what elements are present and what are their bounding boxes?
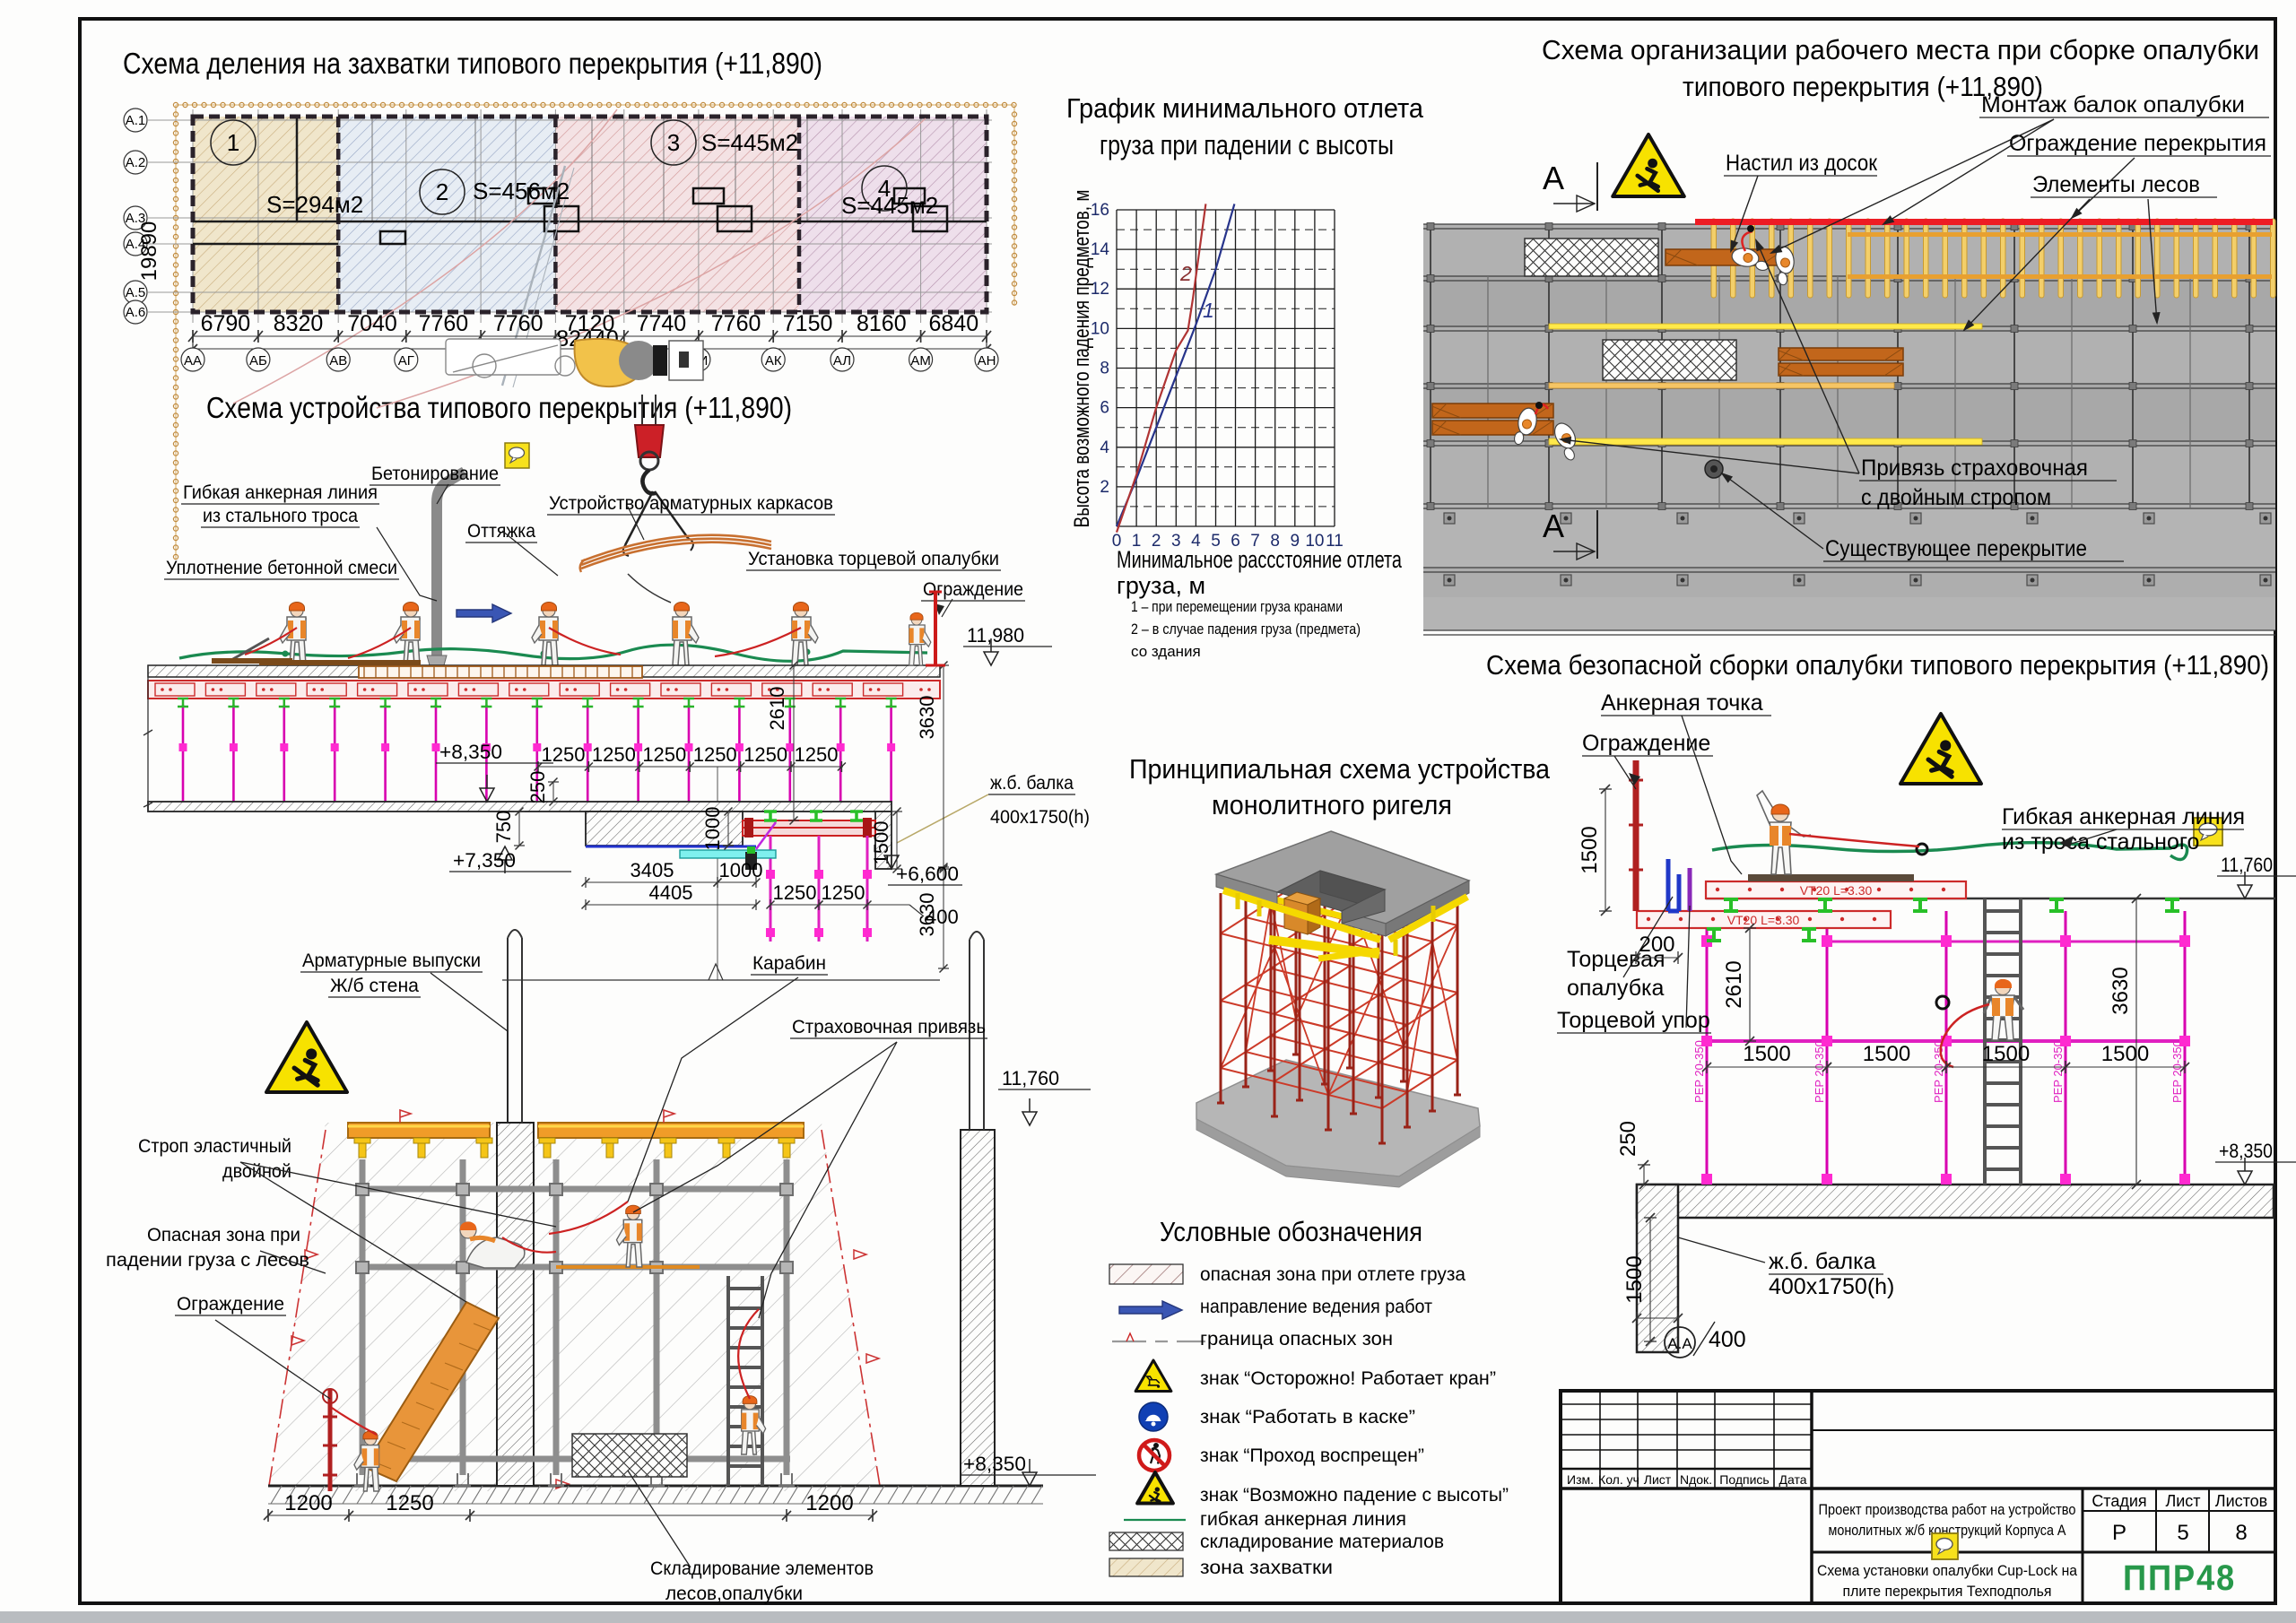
svg-text:1250: 1250	[795, 743, 839, 766]
svg-text:АБ: АБ	[249, 353, 267, 369]
svg-text:1250: 1250	[386, 1491, 433, 1515]
svg-text:VT20 L=3.30: VT20 L=3.30	[1727, 913, 1800, 927]
svg-text:1200: 1200	[805, 1491, 853, 1515]
svg-text:Опасная зона при: Опасная зона при	[147, 1225, 300, 1245]
svg-text:2610: 2610	[766, 687, 788, 731]
svg-text:+6,600: +6,600	[896, 863, 959, 885]
svg-text:Стадия: Стадия	[2092, 1492, 2146, 1510]
svg-text:АЛ: АЛ	[833, 353, 851, 369]
svg-text:7040: 7040	[347, 311, 397, 336]
svg-text:6790: 6790	[201, 311, 251, 336]
svg-text:8: 8	[1100, 360, 1109, 378]
svg-text:Кол. уч: Кол. уч	[1598, 1472, 1639, 1487]
svg-text:19890: 19890	[137, 221, 161, 282]
svg-text:монолитного ригеля: монолитного ригеля	[1212, 789, 1452, 820]
svg-text:PEP 20-350: PEP 20-350	[2170, 1040, 2184, 1103]
svg-text:АА: АА	[184, 353, 202, 369]
svg-text:250: 250	[526, 771, 549, 804]
svg-text:1500: 1500	[1578, 826, 1602, 873]
svg-text:200: 200	[1639, 933, 1674, 957]
svg-text:+8,350: +8,350	[439, 741, 502, 763]
svg-text:1500: 1500	[1863, 1042, 1910, 1066]
svg-text:А: А	[1543, 508, 1564, 544]
svg-text:АГ: АГ	[398, 353, 414, 369]
svg-text:из троса стального: из троса стального	[2002, 829, 2199, 855]
svg-text:График минимального отлета: График минимального отлета	[1066, 92, 1424, 124]
svg-text:Установка торцевой опалубки: Установка торцевой опалубки	[748, 549, 999, 569]
svg-text:1500: 1500	[2101, 1042, 2149, 1066]
svg-text:VT20 L=3.30: VT20 L=3.30	[1800, 883, 1873, 898]
svg-text:750: 750	[492, 811, 515, 844]
svg-text:Складирование элементов: Складирование элементов	[650, 1558, 874, 1579]
svg-text:3: 3	[667, 129, 680, 156]
svg-text:250: 250	[1616, 1121, 1640, 1157]
svg-text:Привязь страховочная: Привязь страховочная	[1861, 456, 2088, 481]
svg-text:5: 5	[2177, 1521, 2188, 1545]
svg-text:гибкая анкерная линия: гибкая анкерная линия	[1200, 1509, 1406, 1530]
svg-text:Оттяжка: Оттяжка	[467, 521, 535, 542]
svg-text:из стального троса: из стального троса	[203, 506, 358, 526]
svg-text:11,980: 11,980	[967, 624, 1024, 647]
svg-text:1250: 1250	[822, 881, 865, 904]
svg-text:1000: 1000	[701, 807, 724, 851]
svg-text:1250: 1250	[642, 743, 686, 766]
svg-text:2: 2	[1179, 262, 1192, 285]
svg-text:1: 1	[227, 129, 239, 156]
svg-text:Подпись: Подпись	[1719, 1472, 1769, 1487]
svg-text:1500: 1500	[1982, 1042, 2030, 1066]
svg-text:знак “Осторожно! Работает кран: знак “Осторожно! Работает кран”	[1200, 1368, 1496, 1389]
svg-text:1500: 1500	[870, 821, 892, 865]
svg-text:граница опасных зон: граница опасных зон	[1200, 1329, 1393, 1350]
svg-text:плите перекрытия Техподполья: плите перекрытия Техподполья	[1843, 1583, 2052, 1600]
svg-text:Р: Р	[2112, 1521, 2126, 1545]
svg-text:складирование материалов: складирование материалов	[1200, 1532, 1444, 1552]
svg-text:2: 2	[436, 178, 448, 205]
svg-text:груза при падении с высоты: груза при падении с высоты	[1100, 129, 1394, 161]
svg-text:ж.б. балка: ж.б. балка	[990, 773, 1074, 794]
svg-text:8: 8	[2235, 1521, 2247, 1545]
svg-text:1: 1	[1203, 299, 1214, 322]
svg-text:двойной: двойной	[222, 1161, 291, 1182]
svg-text:1250: 1250	[773, 881, 817, 904]
svg-text:знак “Работать в каске”: знак “Работать в каске”	[1200, 1407, 1415, 1428]
svg-text:2 – в случае падения груза (пр: 2 – в случае падения груза (предмета)	[1131, 621, 1361, 638]
svg-text:А.5: А.5	[126, 285, 146, 300]
svg-text:АК: АК	[765, 353, 782, 369]
svg-text:1 – при перемещении груза кран: 1 – при перемещении груза кранами	[1131, 598, 1343, 615]
svg-text:PEP 20-350: PEP 20-350	[1692, 1040, 1706, 1103]
svg-text:Арматурные выпуски: Арматурные выпуски	[302, 950, 481, 971]
svg-text:+8,350: +8,350	[963, 1453, 1026, 1475]
svg-text:опасная зона при отлете груза: опасная зона при отлете груза	[1200, 1264, 1465, 1285]
svg-text:с двойным стропом: с двойным стропом	[1861, 485, 2051, 510]
svg-text:1000: 1000	[719, 859, 763, 881]
svg-text:Ограждение: Ограждение	[923, 579, 1023, 600]
svg-text:Ж/б стена: Ж/б стена	[330, 976, 419, 996]
svg-text:4405: 4405	[649, 881, 693, 904]
svg-text:Анкерная точка: Анкерная точка	[1601, 690, 1763, 716]
svg-text:Ограждение: Ограждение	[177, 1294, 284, 1315]
svg-text:АВ: АВ	[329, 353, 347, 369]
svg-text:АМ: АМ	[910, 353, 931, 369]
svg-text:падении груза с лесов: падении груза с лесов	[106, 1250, 309, 1271]
svg-text:S=445м2: S=445м2	[701, 129, 798, 156]
svg-text:Устройство арматурных каркасов: Устройство арматурных каркасов	[549, 493, 833, 514]
svg-text:1200: 1200	[284, 1491, 332, 1515]
svg-text:опалубка: опалубка	[1567, 976, 1665, 1001]
svg-text:Схема устройства типового пере: Схема устройства типового перекрытия (+1…	[206, 391, 792, 424]
svg-text:Лист: Лист	[1644, 1472, 1672, 1487]
svg-text:PEP 20-350: PEP 20-350	[2051, 1040, 2065, 1103]
svg-text:6840: 6840	[928, 311, 978, 336]
svg-text:ж.б. балка: ж.б. балка	[1769, 1249, 1876, 1274]
svg-text:Схема безопасной сборки опалуб: Схема безопасной сборки опалубки типовог…	[1486, 649, 2269, 681]
svg-text:Настил из досок: Настил из досок	[1726, 151, 1878, 176]
svg-text:Минимальное рассстояние отлета: Минимальное рассстояние отлета	[1117, 546, 1403, 573]
svg-text:Гибкая анкерная линия: Гибкая анкерная линия	[183, 482, 378, 503]
svg-text:со здания: со здания	[1131, 643, 1201, 660]
svg-text:Высота возможного падения пред: Высота возможного падения предметов, м	[1070, 190, 1094, 528]
svg-text:Условные обозначения: Условные обозначения	[1160, 1216, 1422, 1247]
svg-text:1250: 1250	[592, 743, 636, 766]
svg-text:Дата: Дата	[1779, 1472, 1806, 1487]
svg-text:А.1: А.1	[126, 113, 146, 128]
svg-text:3405: 3405	[631, 859, 674, 881]
svg-text:Листов: Листов	[2215, 1492, 2267, 1510]
svg-text:Существующее перекрытие: Существующее перекрытие	[1825, 536, 2087, 561]
svg-text:+7,350: +7,350	[453, 849, 516, 872]
svg-text:7760: 7760	[493, 311, 544, 336]
svg-text:1500: 1500	[1622, 1255, 1647, 1303]
svg-text:S=445м2: S=445м2	[841, 192, 938, 219]
svg-text:знак “Проход воспрещен”: знак “Проход воспрещен”	[1200, 1445, 1424, 1466]
svg-text:2610: 2610	[1722, 960, 1746, 1008]
svg-text:Гибкая анкерная линия: Гибкая анкерная линия	[2002, 804, 2245, 829]
svg-text:А.2: А.2	[126, 155, 146, 170]
svg-text:Принципиальная схема устройств: Принципиальная схема устройства	[1129, 753, 1551, 785]
svg-text:А: А	[1543, 160, 1564, 196]
svg-text:7760: 7760	[711, 311, 761, 336]
svg-text:Бетонирование: Бетонирование	[371, 464, 499, 484]
svg-text:Схема деления на захватки типо: Схема деления на захватки типового перек…	[123, 47, 822, 80]
svg-text:8160: 8160	[857, 311, 907, 336]
svg-text:PEP 20-350: PEP 20-350	[1932, 1040, 1945, 1103]
svg-text:Схема установки опалубки Cup-L: Схема установки опалубки Cup-Lock на	[1817, 1562, 2077, 1579]
svg-text:+8,350: +8,350	[2219, 1140, 2273, 1162]
svg-text:Проект производства работ на у: Проект производства работ на устройство	[1819, 1501, 2076, 1518]
svg-text:7760: 7760	[419, 311, 469, 336]
svg-text:1250: 1250	[542, 743, 586, 766]
svg-text:направление ведения работ: направление ведения работ	[1200, 1297, 1432, 1317]
svg-text:3630: 3630	[916, 696, 938, 740]
svg-text:400х1750(h): 400х1750(h)	[990, 807, 1090, 828]
svg-text:Строп эластичный: Строп эластичный	[138, 1136, 291, 1157]
svg-text:400х1750(h): 400х1750(h)	[1769, 1274, 1894, 1299]
svg-text:Страховочная привязь: Страховочная привязь	[792, 1017, 986, 1037]
svg-text:8320: 8320	[274, 311, 324, 336]
svg-text:груза, м: груза, м	[1117, 572, 1205, 599]
svg-text:PEP 20-350: PEP 20-350	[1813, 1040, 1826, 1103]
svg-text:Ограждение перекрытия: Ограждение перекрытия	[2009, 131, 2266, 156]
svg-text:АН: АН	[978, 353, 996, 369]
svg-text:лесов,опалубки: лесов,опалубки	[665, 1584, 803, 1604]
svg-text:1250: 1250	[693, 743, 737, 766]
svg-text:3630: 3630	[2109, 967, 2133, 1014]
svg-text:6: 6	[1100, 399, 1109, 418]
svg-text:Изм.: Изм.	[1567, 1472, 1594, 1487]
svg-text:400: 400	[926, 906, 959, 928]
svg-text:400: 400	[1709, 1327, 1746, 1352]
svg-text:4: 4	[1100, 438, 1109, 457]
svg-text:S=294м2: S=294м2	[266, 191, 363, 218]
svg-text:Nдок.: Nдок.	[1680, 1472, 1712, 1487]
svg-text:Карабин: Карабин	[752, 953, 826, 974]
svg-text:Лист: Лист	[2165, 1492, 2200, 1510]
svg-text:зона захватки: зона захватки	[1200, 1558, 1333, 1578]
svg-text:А.А: А.А	[1667, 1335, 1692, 1352]
svg-text:7740: 7740	[637, 311, 687, 336]
svg-text:знак “Возможно падение с высот: знак “Возможно падение с высоты”	[1200, 1485, 1509, 1506]
svg-text:S=456м2: S=456м2	[473, 178, 570, 204]
svg-text:11,760: 11,760	[1002, 1067, 1059, 1089]
svg-text:Уплотнение бетонной смеси: Уплотнение бетонной смеси	[166, 558, 397, 578]
svg-text:1250: 1250	[744, 743, 787, 766]
svg-text:Монтаж балок опалубки: Монтаж балок опалубки	[1981, 92, 2245, 117]
svg-text:ППР48: ППР48	[2123, 1558, 2236, 1598]
svg-text:11,760: 11,760	[2221, 854, 2273, 876]
svg-text:2: 2	[1100, 478, 1109, 497]
svg-text:7150: 7150	[783, 311, 833, 336]
svg-text:1500: 1500	[1743, 1042, 1790, 1066]
svg-text:Схема организации рабочего мес: Схема организации рабочего места при сбо…	[1542, 34, 2259, 65]
svg-text:А.6: А.6	[126, 305, 146, 320]
